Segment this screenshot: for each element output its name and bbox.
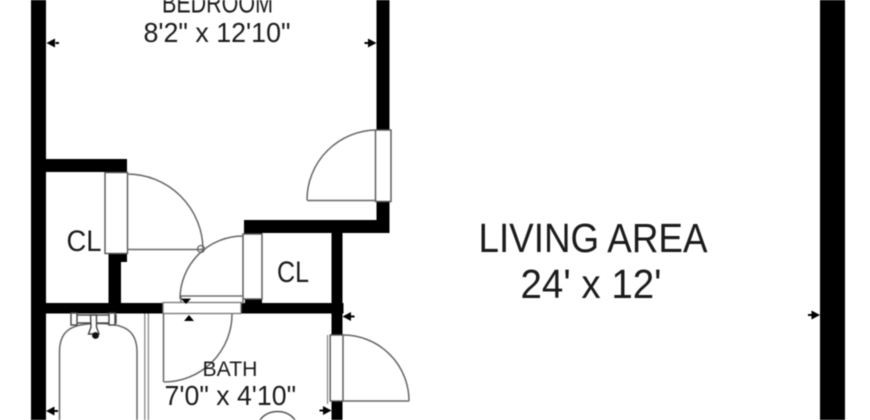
svg-text:8'2" x 12'10": 8'2" x 12'10" bbox=[144, 17, 291, 48]
svg-text:7'0" x 4'10": 7'0" x 4'10" bbox=[165, 380, 297, 411]
svg-text:BEDROOM: BEDROOM bbox=[162, 0, 273, 19]
svg-text:CL: CL bbox=[277, 256, 309, 289]
svg-text:BATH: BATH bbox=[203, 358, 258, 381]
svg-text:LIVING AREA: LIVING AREA bbox=[479, 215, 709, 261]
svg-text:CL: CL bbox=[67, 225, 102, 258]
svg-text:24' x 12': 24' x 12' bbox=[521, 261, 662, 307]
